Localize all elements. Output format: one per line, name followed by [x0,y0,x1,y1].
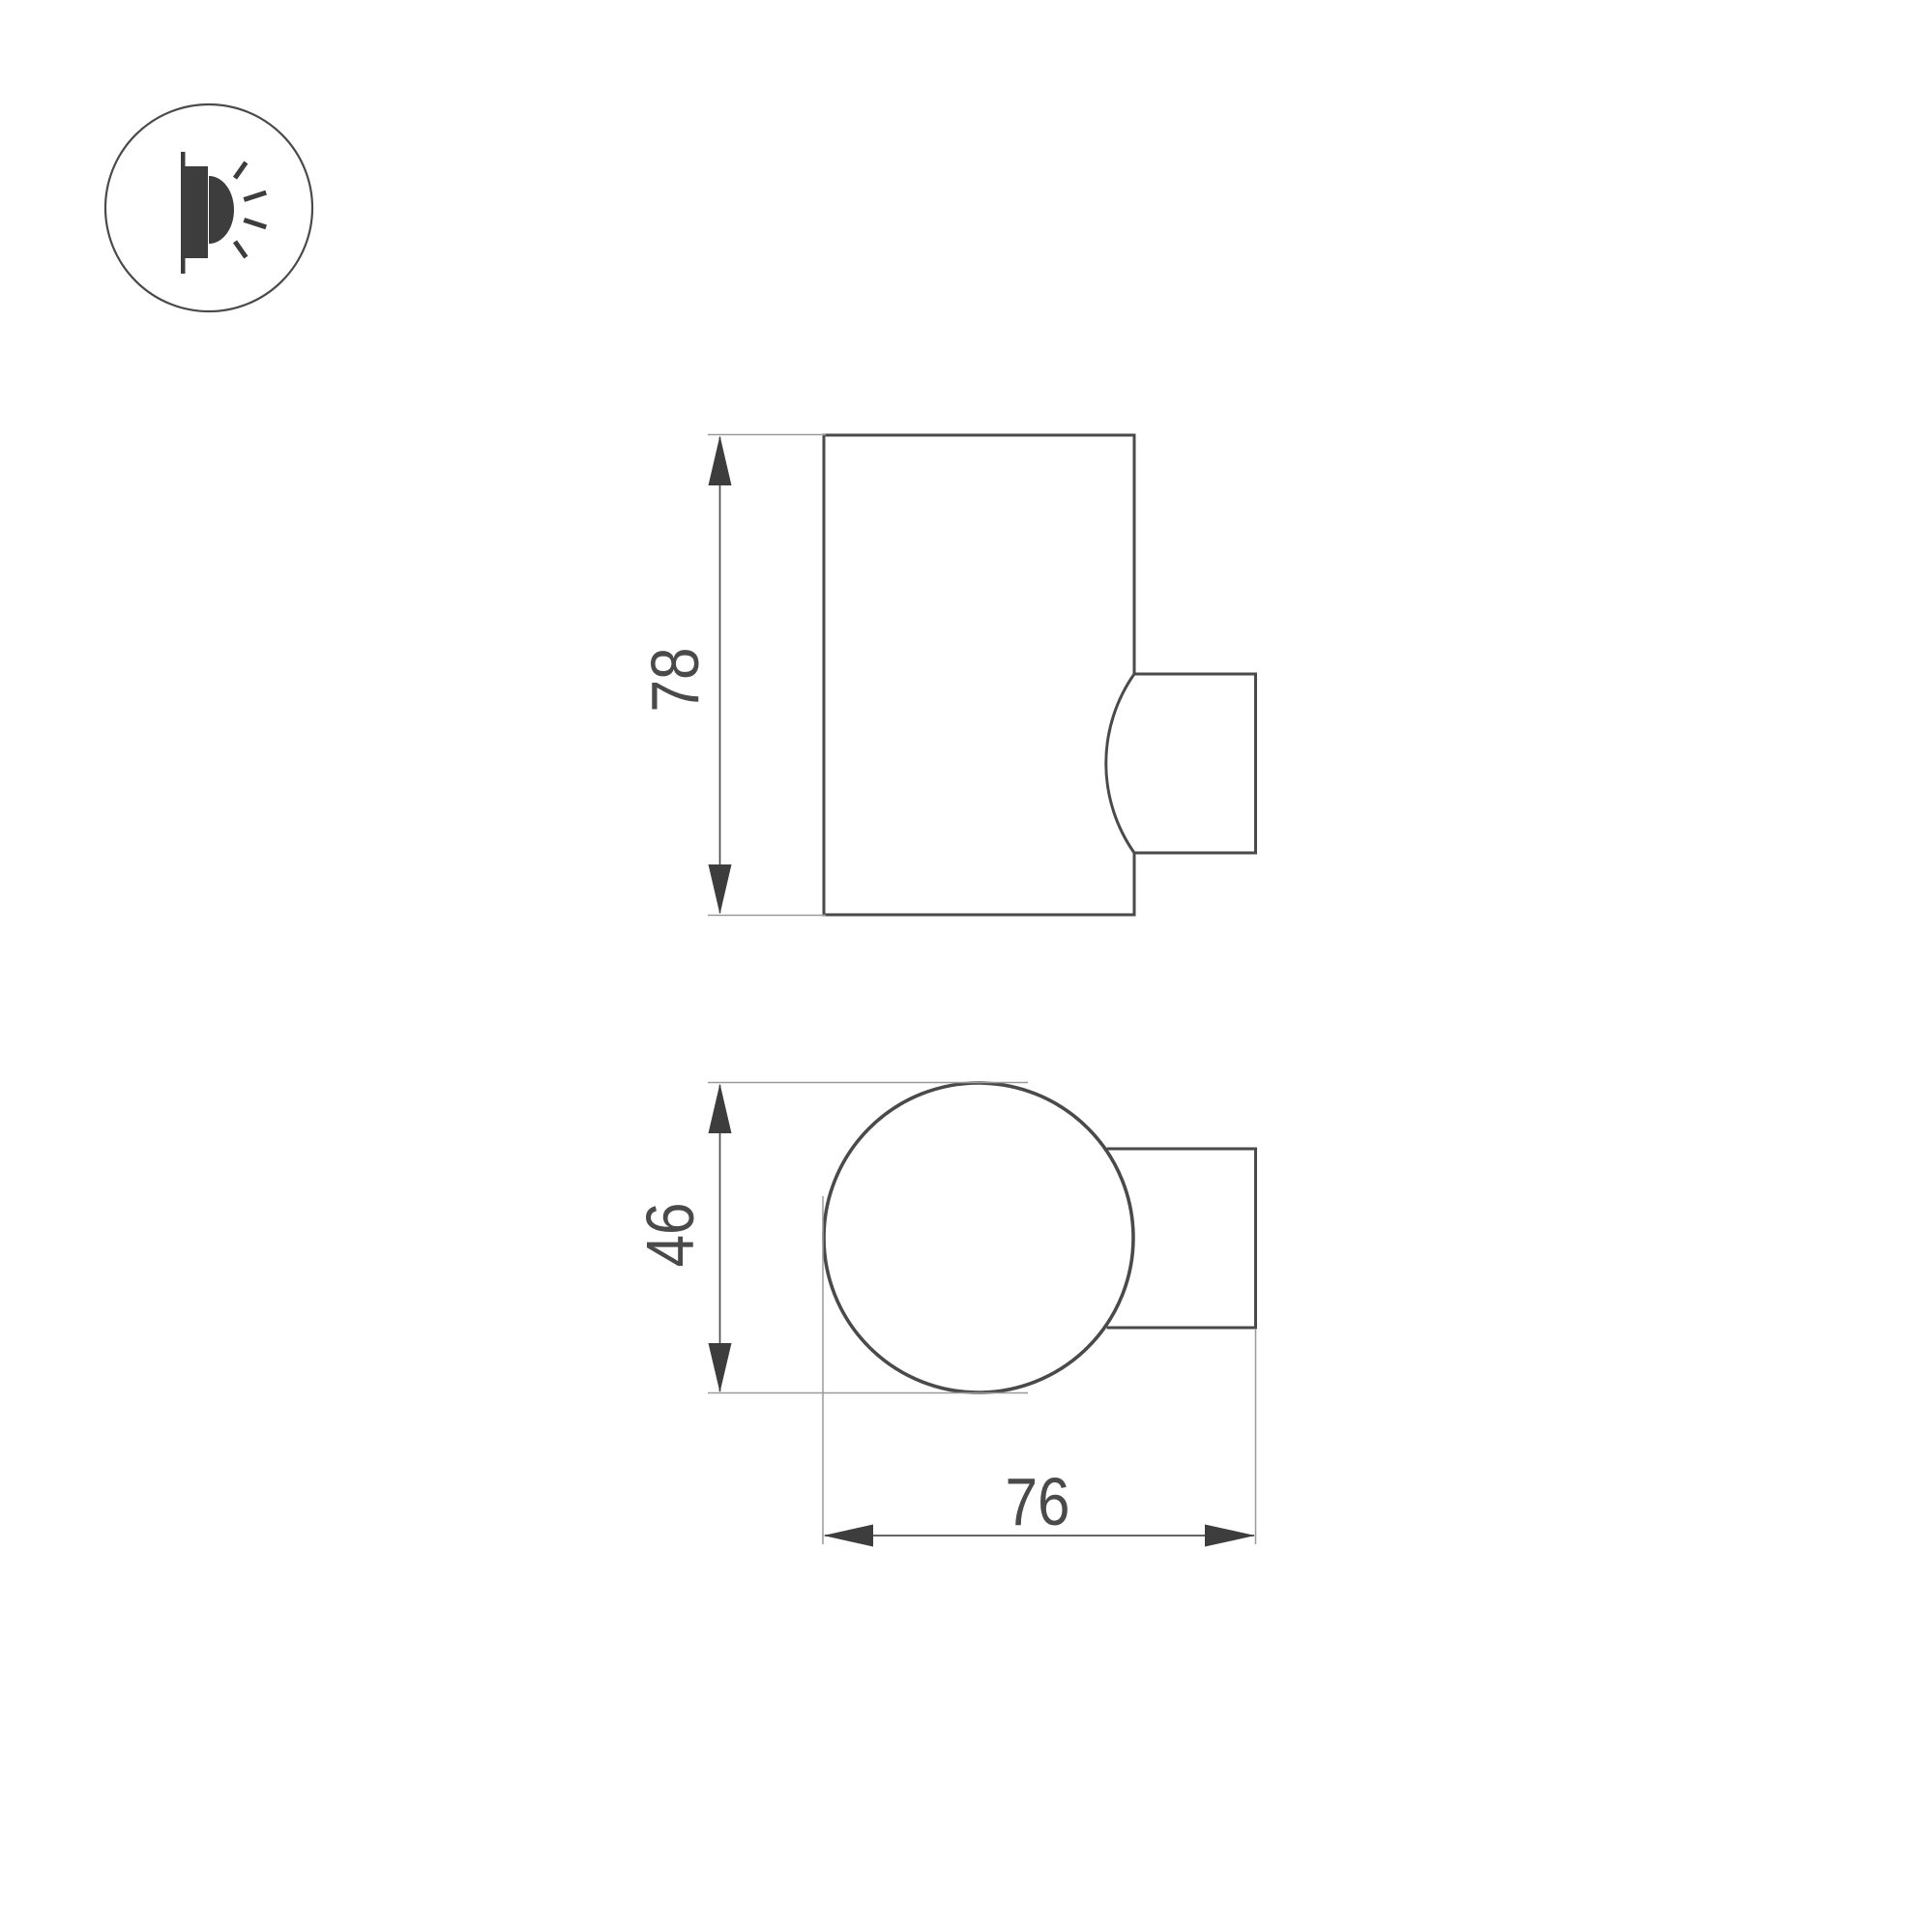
icon-lamp-lens [209,176,234,244]
diameter-dimension: 46 [632,1083,1028,1393]
depth-dimension: 76 [823,1196,1256,1547]
height-arrow-up [709,436,732,486]
side-view-mount [1134,674,1256,853]
wall-light-icon [105,104,312,311]
top-view-mount [1107,1149,1256,1328]
height-dimension: 78 [637,435,826,916]
diameter-arrow-up [709,1084,732,1134]
icon-light-rays [235,162,266,257]
side-view-cylinder [824,435,1134,915]
top-view [824,1083,1256,1392]
depth-arrow-right [1205,1525,1255,1547]
depth-arrow-left [824,1525,874,1547]
diameter-arrow-down [709,1343,732,1392]
top-view-circle [824,1083,1133,1392]
diameter-dimension-label: 46 [632,1203,708,1268]
icon-lamp-body [184,166,208,258]
height-arrow-down [709,864,732,915]
depth-dimension-label: 76 [1006,1464,1070,1539]
technical-drawing-canvas: 78 46 76 [0,0,1932,1932]
height-dimension-label: 78 [637,648,713,713]
side-view [824,435,1256,915]
